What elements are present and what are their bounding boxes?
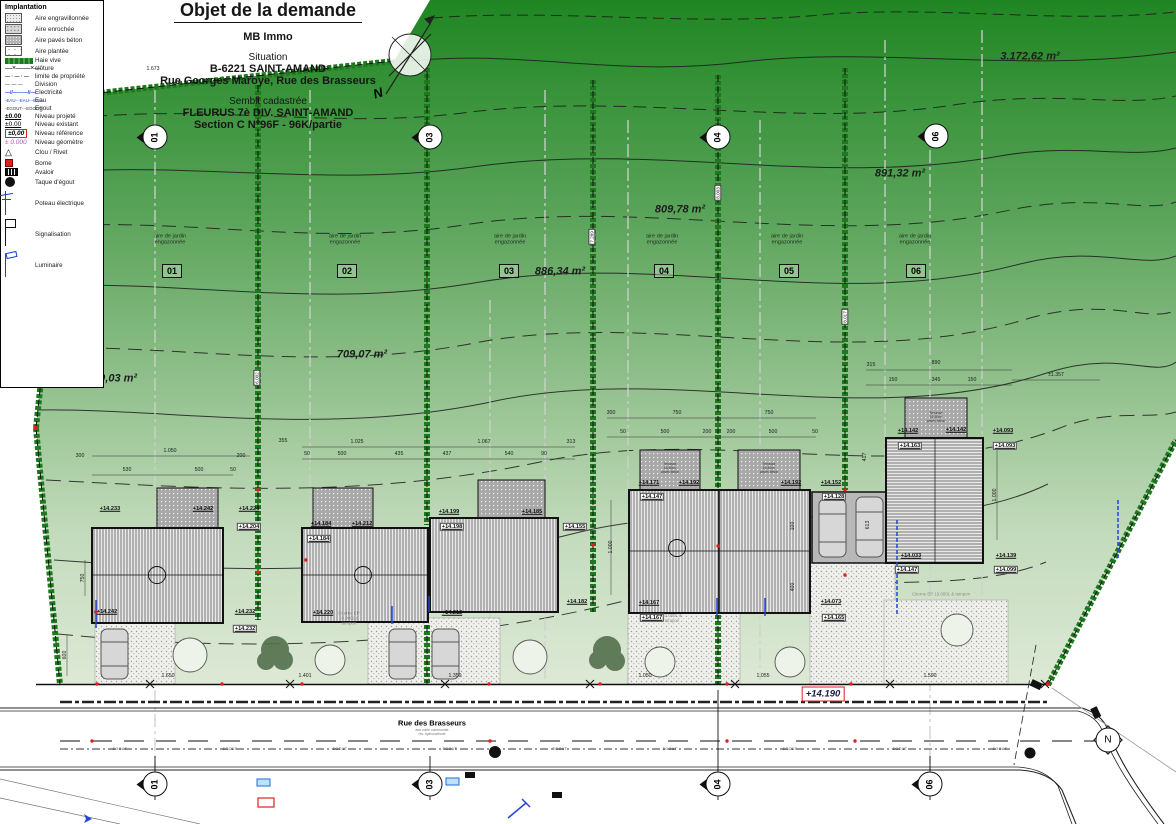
axis-marker-label: 04 [713,779,723,789]
reference-level-badge: +14.190 [802,687,845,702]
legend-item-label: Taque d'égout [35,179,74,186]
geo-icon: ± 0.000 [5,139,35,146]
legend-item: △Clou / Rivet [5,147,101,158]
legend-item-label: Niveau référence [35,130,83,137]
fence-icon: —×——×— [5,65,35,72]
legend-item-label: Aire plantée [35,48,69,55]
legend-item-label: Aire pavés béton [35,37,82,44]
legend-item-label: Division [35,81,57,88]
proj-icon: ±0.00 [5,113,35,120]
planted-icon [5,46,35,56]
cadastre-section: Section C N°96F - 96K/partie [118,119,418,131]
title-block: Objet de la demande MB Immo Situation B-… [118,0,418,131]
poteau-icon [5,191,35,215]
property-icon: — · — · — [5,74,35,80]
legend-item-label: Eau [35,97,46,104]
legend-item-label: Niveau géomètre [35,139,83,146]
borne-icon [5,159,35,167]
legend-item: Signalisation [5,219,101,249]
legend-item: Aire pavés béton [5,35,101,45]
axis-marker: 03 [418,125,443,150]
legend-item-label: Avaloir [35,169,54,176]
paves-icon [5,35,35,45]
rock-icon [5,24,35,34]
inlet-icon [465,772,475,778]
legend-item: Aire engravillonnée [5,13,101,23]
axis-marker-label: 03 [425,132,435,142]
site-plan: 840,03 m²709,07 m²886,34 m²809,78 m²891,… [0,0,1176,824]
legend-item: — · — · —limite de propriété [5,73,101,80]
situation-label: Situation [118,52,418,63]
manhole-icon [489,746,501,758]
legend-item: Aire enrochée [5,24,101,34]
water-valve-icon [257,779,270,786]
lum-icon [5,253,35,277]
axis-marker-label: 06 [925,779,935,789]
axis-marker: 01 [143,772,168,797]
axis-marker: 04 [706,125,731,150]
gravel-icon [5,13,35,23]
legend-item: —//———//—Electricité [5,89,101,96]
legend-item-label: Signalisation [35,231,71,238]
legend-item-label: Niveau existant [35,121,78,128]
legend-item-label: Aire engravillonnée [35,15,89,22]
legend-item-label: clôture [35,65,54,72]
signal-icon [5,222,35,246]
axis-marker: 06 [918,772,943,797]
lot-number: 04 [654,264,674,278]
hedge-icon [5,58,35,64]
ref-icon: ±0,00 [5,129,35,138]
street-symbols [84,679,1101,823]
legend-item: ±0,00Niveau référence [5,129,101,138]
legend-item-label: Poteau électrique [35,200,84,207]
situation-streets: Rue Georges Maroye, Rue des Brasseurs [118,75,418,87]
legend-item: Avaloir [5,168,101,176]
legend-item: ± 0.000Niveau géomètre [5,139,101,146]
legend-title: Implantation [5,4,101,11]
legend-item-label: Egout [35,105,51,112]
north-point-marker: N [1096,728,1121,753]
applicant: MB Immo [118,31,418,43]
hydrant-icon [258,798,274,807]
egout-icon: -EGOUT-·-EGOUT- [5,106,35,111]
cadastre-division: FLEURUS 7è DIV. SAINT-AMAND [118,107,418,119]
axis-marker-label: 04 [713,132,723,142]
lot-number: 06 [906,264,926,278]
water-valve-icon [446,778,459,785]
manhole-icon [1025,748,1036,759]
legend-item: Luminaire [5,250,101,280]
legend-items: Aire engravillonnéeAire enrochéeAire pav… [5,13,101,280]
axis-marker-label: 06 [931,131,941,141]
legend-item: — — —Division [5,81,101,88]
legend-item-label: Borne [35,160,52,167]
taque-icon [5,177,35,187]
inlet-icon [552,792,562,798]
lot-number: 01 [162,264,182,278]
eau-icon: -EAU-·-EAU-·-EAU- [5,98,35,103]
legend-item-label: Haie vive [35,57,61,64]
lot-number: 05 [779,264,799,278]
cadastre-label: Semblt cadastrée [118,96,418,107]
lot-number: 02 [337,264,357,278]
legend: Implantation Aire engravillonnéeAire enr… [0,0,104,388]
page-title: Objet de la demande [174,0,362,23]
legend-item: ±0.00Niveau projeté [5,113,101,120]
legend-item-label: Niveau projeté [35,113,76,120]
legend-item: —×——×—clôture [5,65,101,72]
street-sub2: rev. hydrocarboné [418,732,445,736]
situation-city: B-6221 SAINT-AMAND [118,63,418,75]
exist-icon: ±0.00 [5,121,35,128]
legend-item: ±0.00Niveau existant [5,121,101,128]
legend-item: -EAU-·-EAU-·-EAU-Eau [5,97,101,104]
street-name: Rue des Brasseurs [398,719,466,728]
axis-marker-label: 01 [150,779,160,789]
legend-item-label: Clou / Rivet [35,149,68,156]
legend-item-label: Luminaire [35,262,63,269]
axis-marker-label: 03 [425,779,435,789]
legend-item: -EGOUT-·-EGOUT-Egout [5,105,101,112]
legend-item-label: Electricité [35,89,62,96]
legend-item-label: limite de propriété [35,73,85,80]
lamp-icon [508,799,530,818]
legend-item-label: Aire enrochée [35,26,74,33]
division-icon: — — — [5,82,35,88]
legend-item: Borne [5,159,101,167]
lot-number: 03 [499,264,519,278]
legend-item: Haie vive [5,57,101,64]
avaloir-icon [5,168,35,176]
axis-marker-label: 01 [150,132,160,142]
axis-marker: 06 [924,124,949,149]
elec-icon: —//———//— [5,90,35,96]
axis-marker: 04 [706,772,731,797]
legend-item: Poteau électrique [5,188,101,218]
axis-marker-label: N [1104,735,1111,746]
legend-item: Taque d'égout [5,177,101,187]
arrow-icon [84,814,92,823]
legend-item: Aire plantée [5,46,101,56]
axis-marker: 03 [418,772,443,797]
clou-icon: △ [5,147,35,158]
